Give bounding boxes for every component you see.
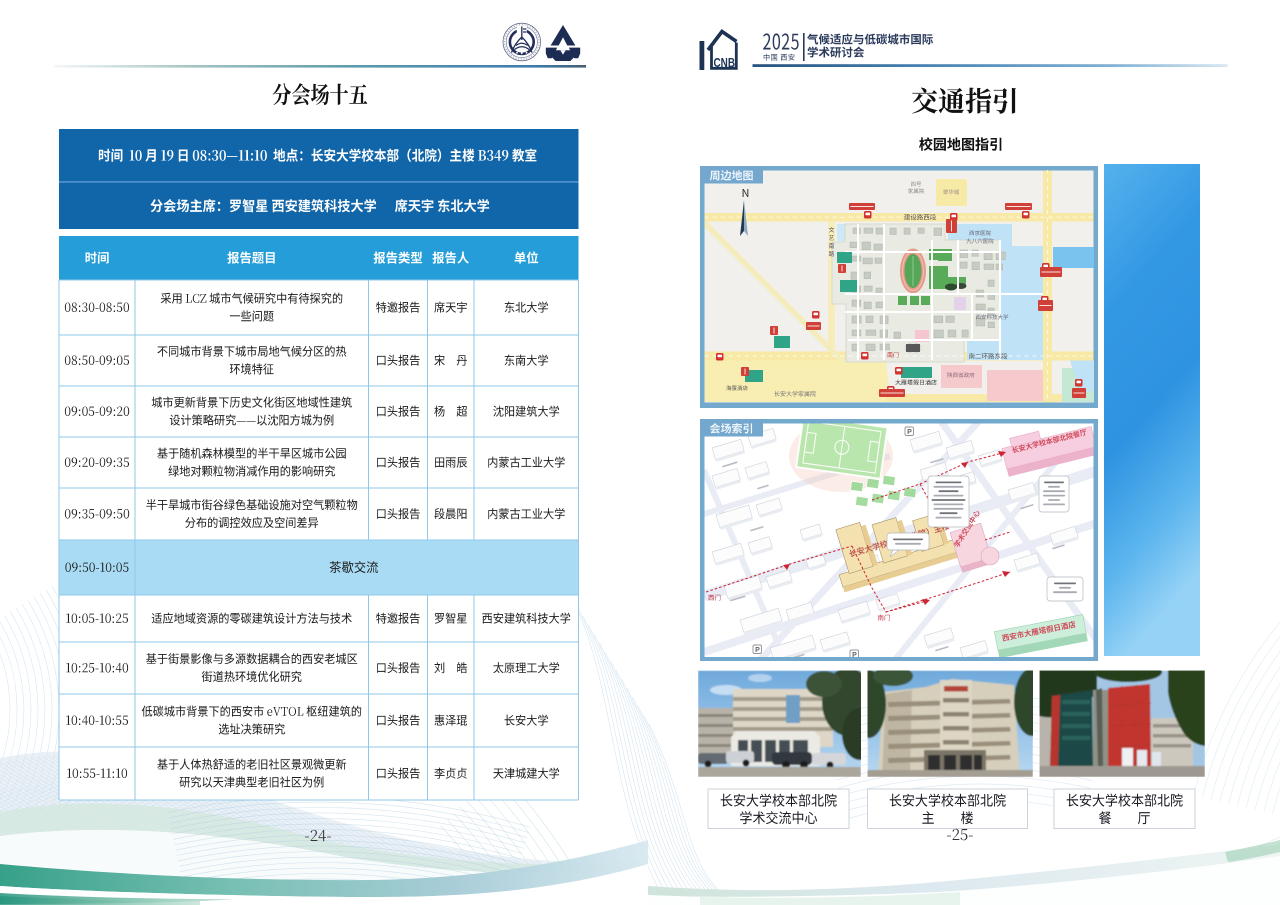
svg-text:P: P xyxy=(907,429,912,436)
svg-text:P: P xyxy=(755,647,760,654)
svg-text:CNB: CNB xyxy=(714,55,736,70)
